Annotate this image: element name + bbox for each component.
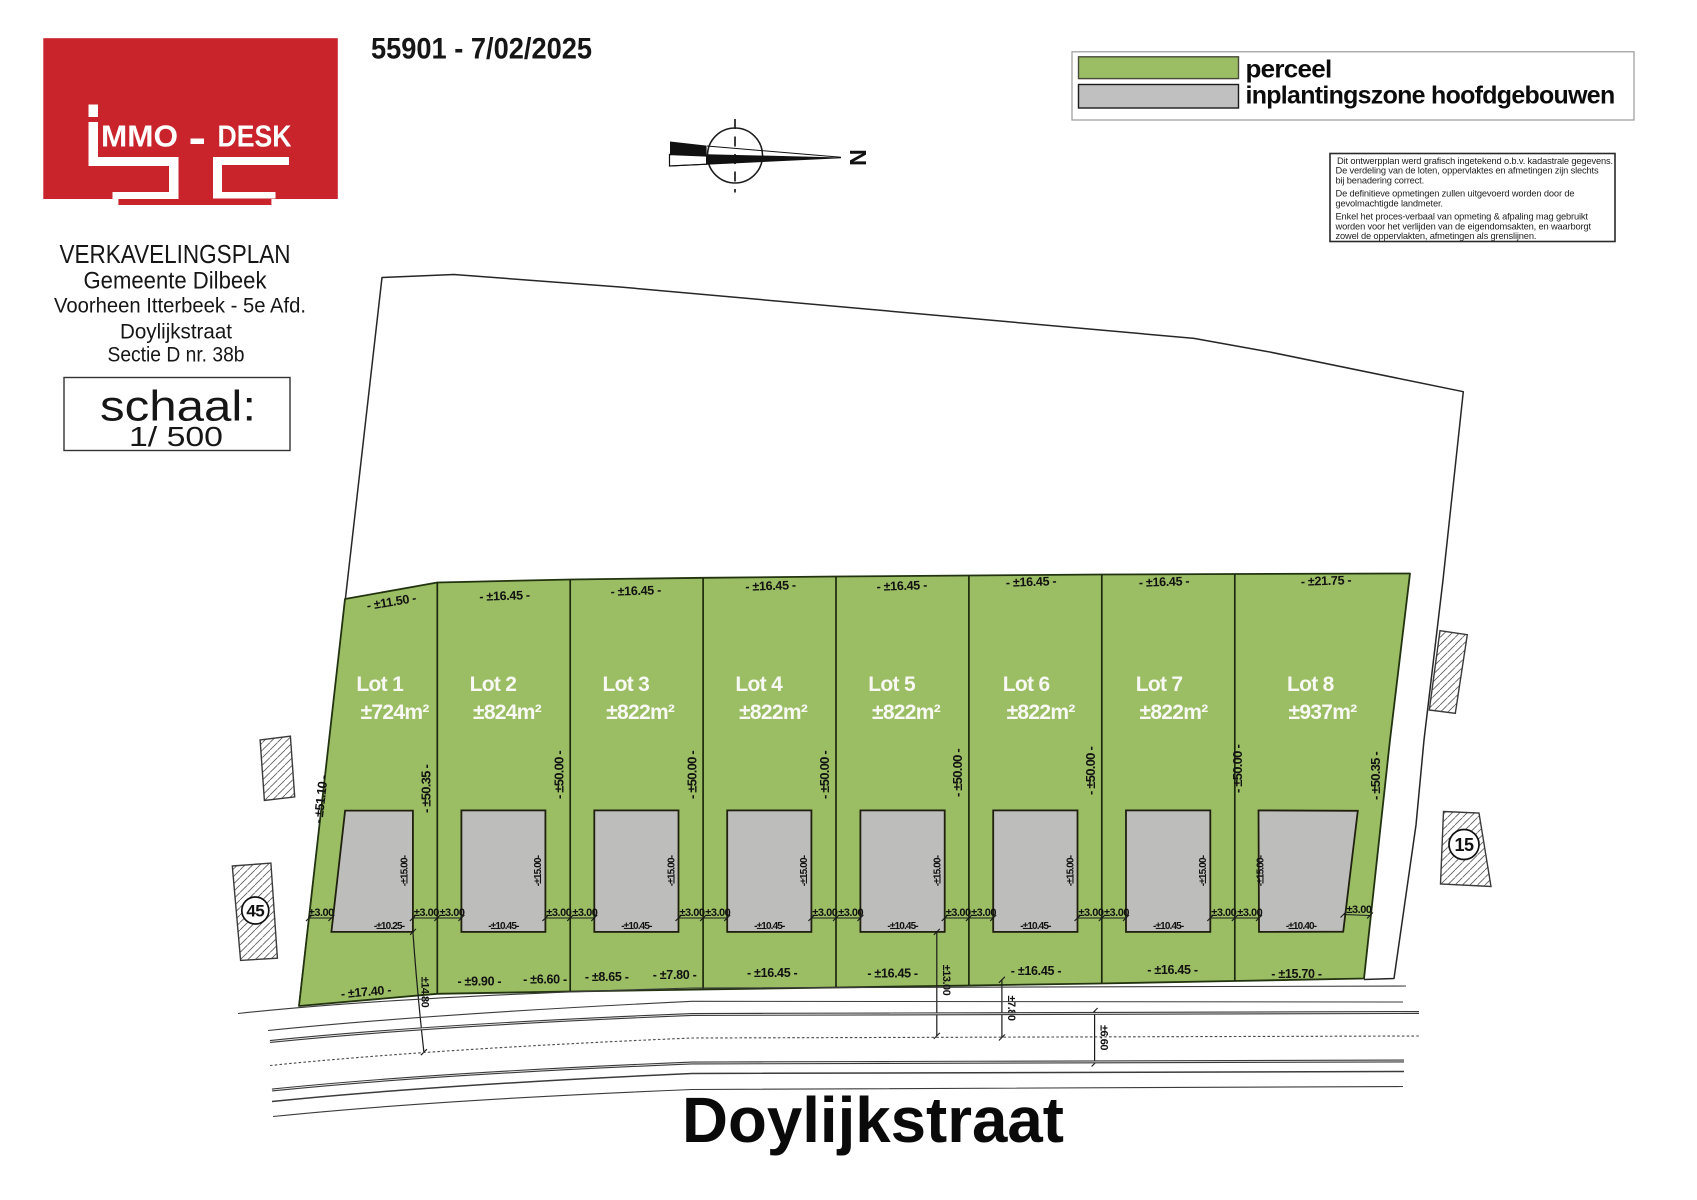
svg-text:±6.60: ±6.60 [1098,1025,1110,1050]
svg-text:- ±16.45 -: - ±16.45 - [1139,574,1190,590]
svg-text:- ±16.45 -: - ±16.45 - [876,578,927,594]
svg-text:Lot 3: Lot 3 [603,673,650,696]
svg-text:- ±16.45 -: - ±16.45 - [747,966,798,980]
svg-text:- ±16.45 -: - ±16.45 - [1006,574,1057,590]
svg-text:Doylijkstraat: Doylijkstraat [120,320,232,344]
svg-text:- ±50.35 -: - ±50.35 - [1368,752,1383,800]
svg-text:- ±16.45 -: - ±16.45 - [1147,963,1198,977]
svg-text:Enkel het proces-verbaal van o: Enkel het proces-verbaal van opmeting & … [1336,212,1589,222]
svg-text:Gemeente Dilbeek: Gemeente Dilbeek [84,268,268,295]
svg-text:Lot 8: Lot 8 [1287,673,1335,696]
svg-text:- ±16.45 -: - ±16.45 - [867,967,918,981]
svg-text:±3.00: ±3.00 [414,907,439,919]
svg-text:-±10.45-: -±10.45- [1153,921,1184,932]
svg-text:N: N [845,149,871,166]
svg-text:- ±21.75 -: - ±21.75 - [1301,573,1352,589]
svg-text:±3.00: ±3.00 [680,907,705,919]
svg-text:zowel de oppervlakten, afmetin: zowel de oppervlakten, afmetingen als gr… [1336,231,1537,241]
svg-text:- ±15.70 -: - ±15.70 - [1271,967,1322,981]
svg-text:Dit ontwerpplan werd grafisch: Dit ontwerpplan werd grafisch ingetekend… [1337,156,1613,166]
svg-text:Voorheen Itterbeek - 5e Afd.: Voorheen Itterbeek - 5e Afd. [54,294,306,318]
svg-text:Lot 5: Lot 5 [868,673,916,696]
svg-text:-±10.40-: -±10.40- [1286,921,1317,932]
svg-text:Lot 2: Lot 2 [470,673,517,696]
svg-text:15: 15 [1454,835,1474,855]
svg-text:MMO: MMO [101,119,178,154]
svg-text:±824m²: ±824m² [473,701,542,724]
svg-text:±724m²: ±724m² [361,701,430,724]
svg-text:-±10.25-: -±10.25- [374,921,405,932]
svg-text:- ±16.45 -: - ±16.45 - [1011,964,1062,978]
svg-text:-±15.00-: -±15.00- [533,855,544,886]
svg-text:- ±50.00 -: - ±50.00 - [817,751,832,799]
svg-text:-±10.45-: -±10.45- [754,921,785,932]
svg-text:±7.80: ±7.80 [1005,996,1017,1021]
svg-text:- ±50.00 -: - ±50.00 - [1230,745,1245,793]
svg-text:±3.00: ±3.00 [1104,907,1129,919]
svg-text:±937m²: ±937m² [1289,701,1358,724]
svg-text:±14.80: ±14.80 [419,977,431,1008]
svg-text:1/ 500: 1/ 500 [129,421,223,452]
svg-text:-±10.45-: -±10.45- [621,921,652,932]
svg-text:Lot 6: Lot 6 [1003,673,1050,696]
svg-text:±3.00: ±3.00 [705,907,730,919]
svg-text:±3.00: ±3.00 [1079,907,1104,919]
svg-text:-±10.45-: -±10.45- [887,921,918,932]
svg-text:-±10.45-: -±10.45- [1020,921,1051,932]
svg-text:±822m²: ±822m² [606,701,675,724]
svg-text:- ±50.35 -: - ±50.35 - [419,765,434,813]
svg-text:- ±9.90 -: - ±9.90 - [458,975,502,989]
svg-text:Sectie D nr. 38b: Sectie D nr. 38b [108,343,245,367]
svg-text:- ±7.80 -: - ±7.80 - [653,968,697,982]
svg-text:Lot 7: Lot 7 [1136,673,1183,696]
svg-text:De definitieve opmetingen zull: De definitieve opmetingen zullen uitgevo… [1336,189,1575,199]
svg-text:VERKAVELINGSPLAN: VERKAVELINGSPLAN [60,241,291,269]
svg-text:±3.00: ±3.00 [440,907,465,919]
svg-text:Lot 4: Lot 4 [735,673,783,696]
svg-text:DESK: DESK [218,119,293,154]
svg-text:-±15.00-: -±15.00- [666,855,677,886]
svg-text:55901 - 7/02/2025: 55901 - 7/02/2025 [371,33,592,66]
svg-text:De verdeling van de loten, opp: De verdeling van de loten, oppervlaktes … [1336,166,1599,176]
svg-text:-±15.00-: -±15.00- [799,855,810,886]
svg-text:-±10.45-: -±10.45- [488,921,519,932]
svg-text:-±15.00-: -±15.00- [400,855,411,886]
svg-text:-±15.00-: -±15.00- [1065,855,1076,886]
svg-text:- ±16.45 -: - ±16.45 - [479,588,530,604]
svg-text:perceel: perceel [1246,56,1332,84]
svg-text:- ±16.45 -: - ±16.45 - [610,583,661,599]
svg-text:±3.00: ±3.00 [812,907,837,919]
svg-text:Lot 1: Lot 1 [356,673,404,696]
svg-text:±3.00: ±3.00 [1237,907,1262,919]
svg-text:- ±6.60 -: - ±6.60 - [523,973,567,987]
svg-text:±3.00: ±3.00 [1211,907,1236,919]
svg-text:- ±50.00 -: - ±50.00 - [1083,747,1098,795]
svg-text:±3.00: ±3.00 [309,907,334,919]
svg-text:-±15.00-: -±15.00- [1256,855,1267,886]
svg-text:- ±50.00 -: - ±50.00 - [950,749,965,797]
svg-text:±822m²: ±822m² [1140,701,1209,724]
svg-text:- ±50.00 -: - ±50.00 - [551,751,566,799]
svg-text:inplantingszone hoofdgebouwen: inplantingszone hoofdgebouwen [1246,82,1615,110]
svg-text:- ±16.45 -: - ±16.45 - [745,578,796,594]
svg-text:45: 45 [246,902,264,921]
svg-text:±3.00: ±3.00 [572,907,597,919]
svg-text:±822m²: ±822m² [1007,701,1076,724]
svg-text:bij benadering correct.: bij benadering correct. [1336,175,1425,185]
svg-text:±822m²: ±822m² [739,701,808,724]
svg-text:±3.00: ±3.00 [1347,904,1372,916]
svg-text:±822m²: ±822m² [872,701,941,724]
svg-text:- ±50.00 -: - ±50.00 - [684,751,699,799]
svg-text:Doylijkstraat: Doylijkstraat [682,1084,1064,1156]
svg-text:- ±8.65 -: - ±8.65 - [585,970,629,984]
svg-text:±3.00: ±3.00 [546,907,571,919]
svg-text:±3.00: ±3.00 [838,907,863,919]
svg-text:±3.00: ±3.00 [971,907,996,919]
svg-text:gevolmachtigde landmeter.: gevolmachtigde landmeter. [1336,198,1443,208]
svg-text:±3.00: ±3.00 [946,907,971,919]
svg-text:-±15.00-: -±15.00- [1198,855,1209,886]
svg-text:±13.00: ±13.00 [940,965,952,996]
svg-text:worden voor het verlijden van: worden voor het verlijden van de eigendo… [1335,221,1592,231]
svg-text:-±15.00-: -±15.00- [933,855,944,886]
